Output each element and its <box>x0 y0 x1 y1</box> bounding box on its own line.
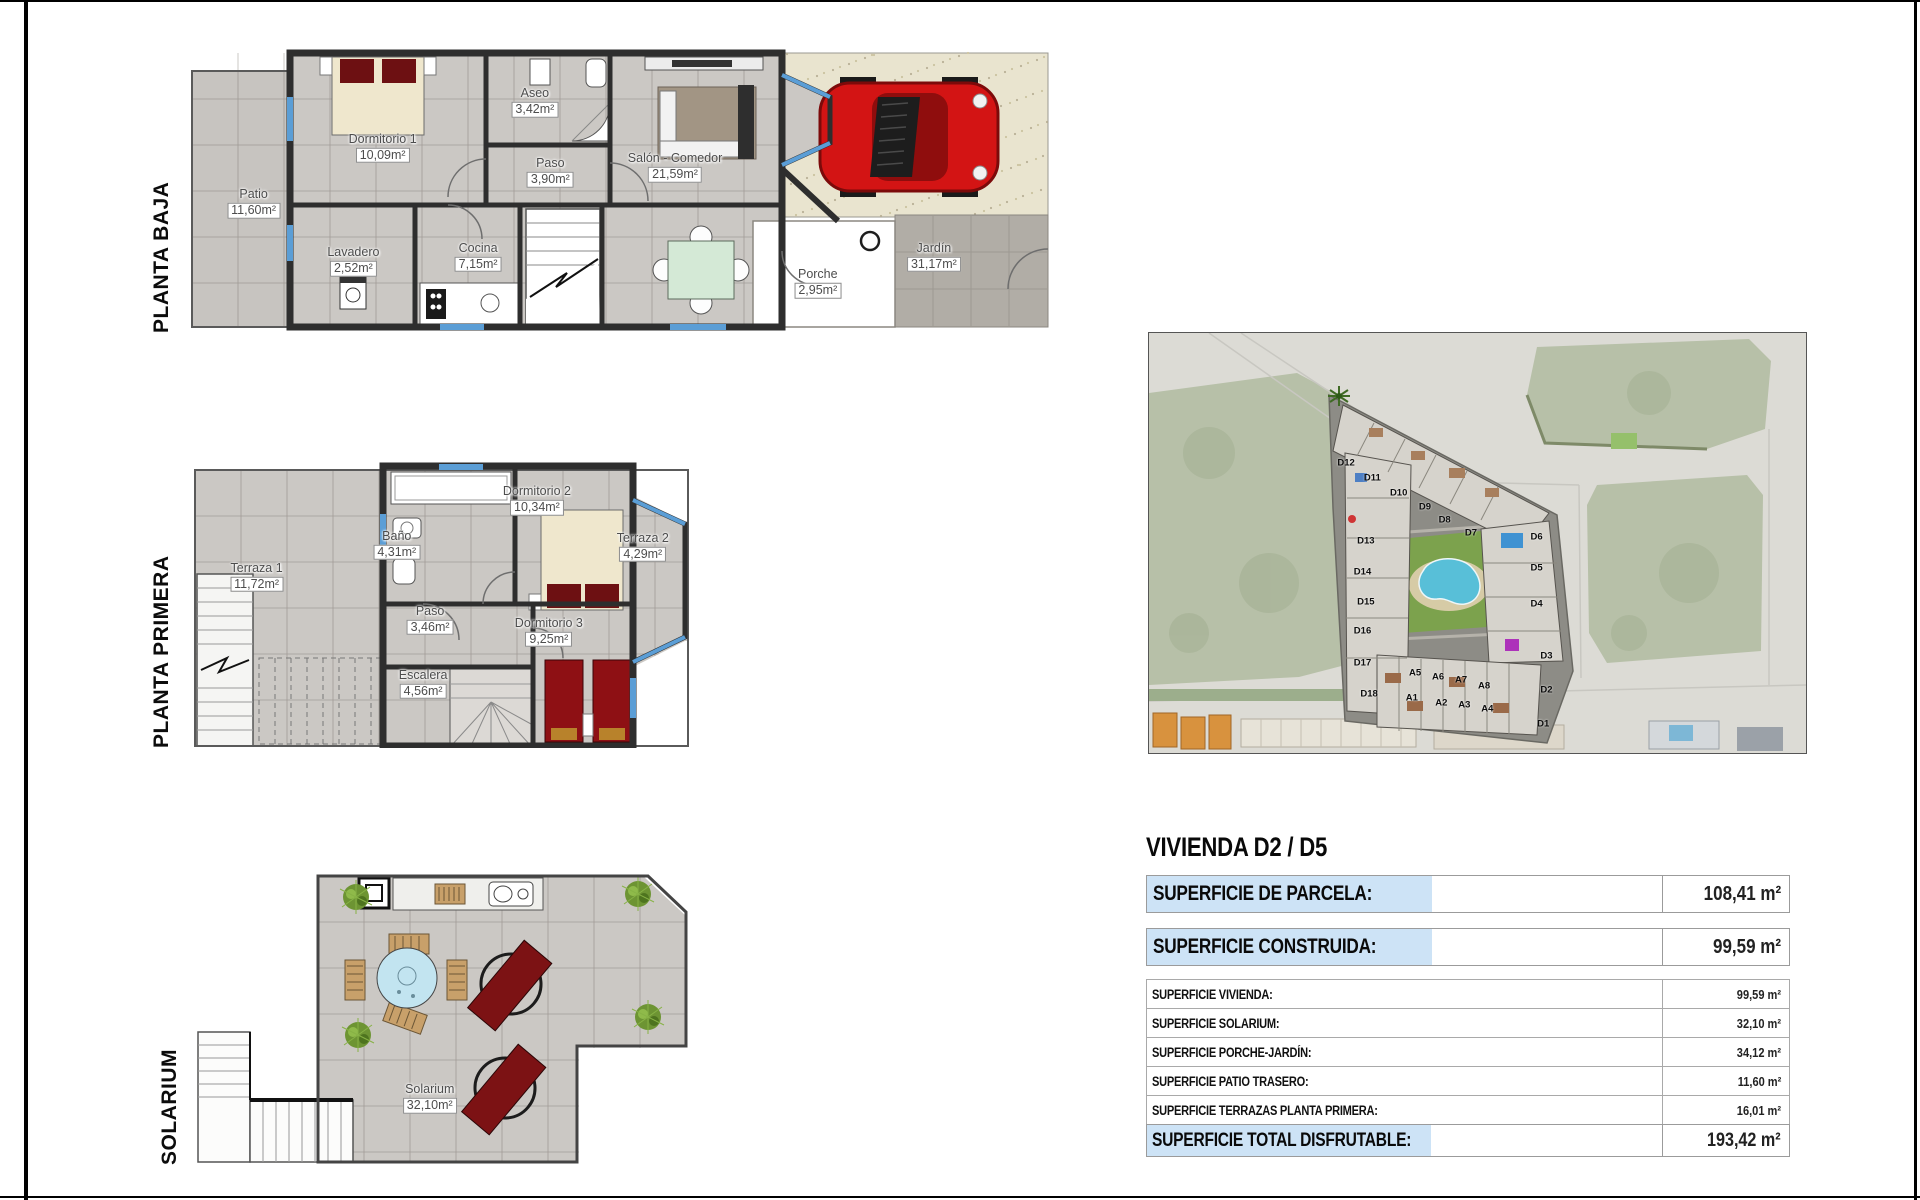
room-label: Cocina7,15m² <box>455 242 502 273</box>
room-name: Jardín <box>907 242 961 256</box>
room-name: Terraza 2 <box>617 532 669 546</box>
room-name: Porche <box>794 268 841 282</box>
room-name: Salón - Comedor <box>628 152 723 166</box>
building-label: A3 <box>1458 699 1470 710</box>
room-label: Paso3,46m² <box>407 605 454 636</box>
room-area: 11,60m² <box>227 203 280 219</box>
summary-row: SUPERFICIE SOLARIUM:32,10 m² <box>1146 1008 1790 1038</box>
room-area: 2,52m² <box>330 261 377 277</box>
building-label: D8 <box>1439 514 1451 525</box>
room-area: 21,59m² <box>648 167 702 183</box>
room-name: Paso <box>527 157 574 171</box>
row-label: SUPERFICIE VIVIENDA: <box>1147 980 1662 1008</box>
dwelling-title: VIVIENDA D2 / D5 <box>1146 832 1790 862</box>
room-label: Solarium32,10m² <box>403 1083 457 1114</box>
building-label: A5 <box>1409 668 1421 679</box>
building-label: D18 <box>1360 689 1377 700</box>
row-value: 99,59 m² <box>1662 929 1789 965</box>
summary-row: SUPERFICIE PATIO TRASERO:11,60 m² <box>1146 1066 1790 1096</box>
building-label: A8 <box>1478 680 1490 691</box>
room-label: Dormitorio 110,09m² <box>349 133 417 164</box>
room-name: Dormitorio 3 <box>515 617 583 631</box>
floor-label-solarium: SOLARIUM <box>158 1049 182 1165</box>
room-name: Paso <box>407 605 454 619</box>
frame-top <box>0 0 1920 2</box>
building-label: D16 <box>1354 626 1371 637</box>
room-label: Lavadero2,52m² <box>327 246 379 277</box>
floor-label-planta-primera: PLANTA PRIMERA <box>150 556 174 749</box>
room-area: 31,17m² <box>907 256 961 272</box>
solarium-plan: Solarium32,10m² <box>193 872 725 1168</box>
building-label: D15 <box>1357 596 1374 607</box>
building-label: D6 <box>1531 531 1543 542</box>
building-label: D7 <box>1465 527 1477 538</box>
room-label: Porche2,95m² <box>794 268 841 299</box>
room-label: Terraza 24,29m² <box>617 532 669 563</box>
building-label: A1 <box>1406 693 1418 704</box>
room-area: 11,72m² <box>230 576 283 592</box>
row-value: 34,12 m² <box>1662 1038 1789 1066</box>
room-name: Escalera <box>399 669 448 683</box>
row-label: SUPERFICIE TOTAL DISFRUTABLE: <box>1147 1125 1431 1156</box>
room-label: Dormitorio 39,25m² <box>515 617 583 648</box>
room-label: Paso3,90m² <box>527 157 574 188</box>
detail-rows: SUPERFICIE VIVIENDA:99,59 m²SUPERFICIE S… <box>1146 979 1790 1125</box>
frame-bottom <box>0 1196 1920 1198</box>
room-name: Dormitorio 2 <box>503 485 571 499</box>
building-label: D12 <box>1337 458 1354 469</box>
building-label: A2 <box>1435 697 1447 708</box>
building-label: D3 <box>1540 651 1552 662</box>
room-label: Baño4,31m² <box>373 530 420 561</box>
building-label: D11 <box>1364 472 1381 483</box>
room-area: 3,46m² <box>407 619 454 635</box>
room-area: 4,56m² <box>400 683 447 699</box>
row-label: SUPERFICIE CONSTRUIDA: <box>1147 929 1432 965</box>
row-superficie-construida: SUPERFICIE CONSTRUIDA: 99,59 m² <box>1146 928 1790 966</box>
room-label: Aseo3,42m² <box>511 87 558 118</box>
frame-right <box>1914 0 1917 1200</box>
room-area: 4,31m² <box>373 544 420 560</box>
building-label: D2 <box>1540 685 1552 696</box>
room-name: Lavadero <box>327 246 379 260</box>
ground-floor-plan: Patio11,60m²Dormitorio 110,09m²Aseo3,42m… <box>190 45 1050 335</box>
plan-sheet: { "floors": { "baja": { "label": "PLANTA… <box>0 0 1920 1200</box>
room-name: Dormitorio 1 <box>349 133 417 147</box>
room-area: 7,15m² <box>455 256 502 272</box>
row-label: SUPERFICIE TERRAZAS PLANTA PRIMERA: <box>1147 1096 1662 1124</box>
row-value: 11,60 m² <box>1662 1067 1789 1095</box>
building-label: A7 <box>1455 674 1467 685</box>
room-name: Cocina <box>455 242 502 256</box>
row-value: 32,10 m² <box>1662 1009 1789 1037</box>
summary-row: SUPERFICIE PORCHE-JARDÍN:34,12 m² <box>1146 1037 1790 1067</box>
row-value: 99,59 m² <box>1662 980 1789 1008</box>
building-label: D9 <box>1419 502 1431 513</box>
building-label: D17 <box>1354 657 1371 668</box>
room-area: 2,95m² <box>794 283 841 299</box>
room-area: 10,09m² <box>356 147 410 163</box>
aerial-site-map: D12D11D10D9D8D7D13D14D15D16D17D18D6D5D4D… <box>1148 332 1807 754</box>
summary-row: SUPERFICIE VIVIENDA:99,59 m² <box>1146 979 1790 1009</box>
room-name: Patio <box>227 188 280 202</box>
building-label: A4 <box>1481 703 1493 714</box>
row-label: SUPERFICIE PORCHE-JARDÍN: <box>1147 1038 1662 1066</box>
summary-row: SUPERFICIE TERRAZAS PLANTA PRIMERA:16,01… <box>1146 1095 1790 1125</box>
building-label: D4 <box>1531 598 1543 609</box>
room-label: Escalera4,56m² <box>399 669 448 700</box>
room-name: Aseo <box>511 87 558 101</box>
floor-label-planta-baja: PLANTA BAJA <box>150 182 174 333</box>
room-name: Solarium <box>403 1083 457 1097</box>
building-label: D13 <box>1357 535 1374 546</box>
row-value: 108,41 m² <box>1662 876 1789 912</box>
room-area: 9,25m² <box>525 631 572 647</box>
room-area: 3,42m² <box>511 102 558 118</box>
building-label: D10 <box>1390 487 1407 498</box>
row-label: SUPERFICIE PATIO TRASERO: <box>1147 1067 1662 1095</box>
room-area: 32,10m² <box>403 1098 457 1114</box>
room-label: Dormitorio 210,34m² <box>503 485 571 516</box>
row-label: SUPERFICIE DE PARCELA: <box>1147 876 1432 912</box>
room-label: Patio11,60m² <box>227 188 280 219</box>
building-label: D1 <box>1537 718 1549 729</box>
building-label: D5 <box>1531 563 1543 574</box>
surface-summary: VIVIENDA D2 / D5 SUPERFICIE DE PARCELA: … <box>1146 832 1790 1157</box>
room-name: Baño <box>373 530 420 544</box>
room-area: 4,29m² <box>619 546 666 562</box>
room-name: Terraza 1 <box>230 562 283 576</box>
room-label: Salón - Comedor21,59m² <box>628 152 723 183</box>
row-value: 16,01 m² <box>1662 1096 1789 1124</box>
row-value: 193,42 m² <box>1662 1125 1789 1156</box>
row-label: SUPERFICIE SOLARIUM: <box>1147 1009 1662 1037</box>
room-area: 10,34m² <box>510 500 564 516</box>
first-floor-plan: Terraza 111,72m²Baño4,31m²Dormitorio 210… <box>193 462 690 748</box>
room-label: Jardín31,17m² <box>907 242 961 273</box>
room-area: 3,90m² <box>527 172 574 188</box>
row-superficie-total: SUPERFICIE TOTAL DISFRUTABLE: 193,42 m² <box>1146 1124 1790 1157</box>
row-superficie-parcela: SUPERFICIE DE PARCELA: 108,41 m² <box>1146 875 1790 913</box>
frame-left <box>24 0 28 1200</box>
building-label: D14 <box>1354 567 1371 578</box>
building-label: A6 <box>1432 672 1444 683</box>
room-label: Terraza 111,72m² <box>230 562 283 593</box>
